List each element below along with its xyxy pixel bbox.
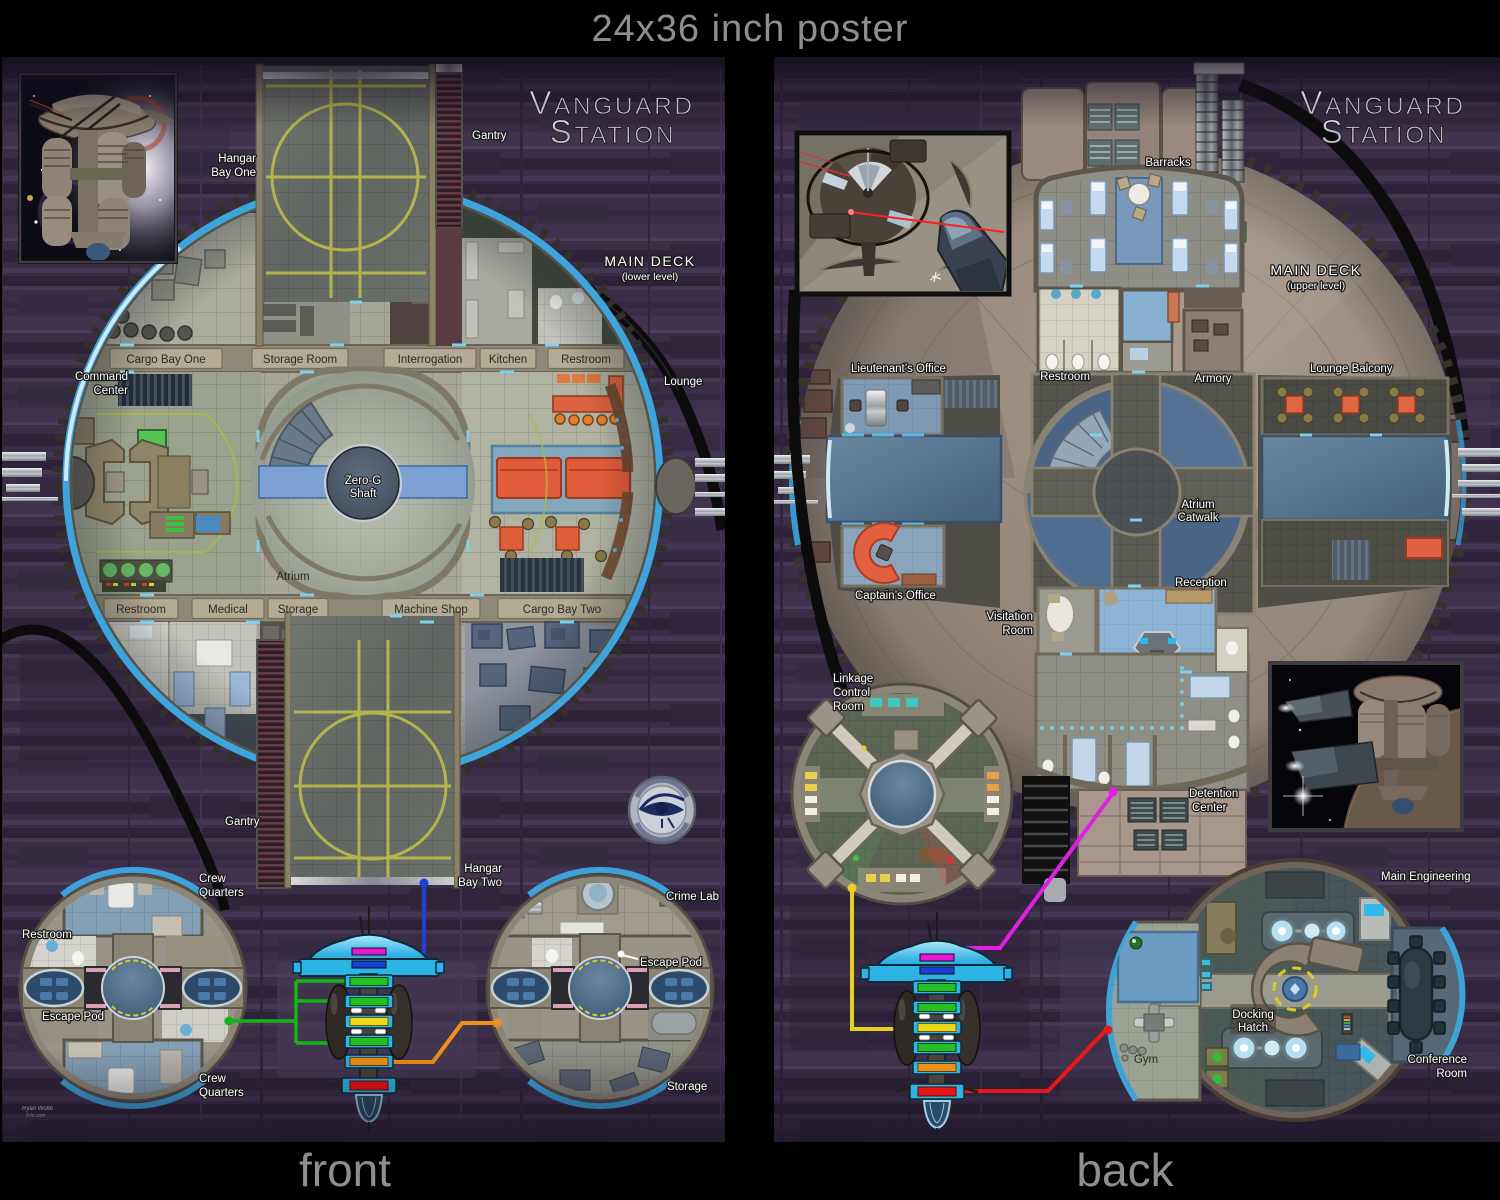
svg-text:Hatch: Hatch <box>1238 1022 1268 1034</box>
svg-text:Docking: Docking <box>1232 1009 1274 1021</box>
svg-text:Quarters: Quarters <box>199 1087 244 1099</box>
svg-text:Escape Pod: Escape Pod <box>42 1011 104 1023</box>
svg-text:Storage: Storage <box>667 1081 707 1093</box>
svg-text:Atrium: Atrium <box>276 571 309 583</box>
svg-text:(lower level): (lower level) <box>622 271 679 283</box>
svg-text:Crew: Crew <box>199 1073 227 1085</box>
svg-text:Gantry: Gantry <box>472 130 507 142</box>
svg-text:Crew: Crew <box>199 873 227 885</box>
svg-text:Interrogation: Interrogation <box>398 354 463 366</box>
svg-text:Lieutenant’s Office: Lieutenant’s Office <box>851 363 946 375</box>
svg-text:Center: Center <box>93 385 128 397</box>
svg-text:Linkage: Linkage <box>833 673 873 685</box>
svg-text:MAIN DECK: MAIN DECK <box>604 253 695 269</box>
svg-text:(upper level): (upper level) <box>1287 280 1345 292</box>
svg-text:Restroom: Restroom <box>22 929 72 941</box>
svg-text:Gym: Gym <box>1134 1054 1158 1066</box>
svg-text:0-hr.com: 0-hr.com <box>26 1113 46 1119</box>
svg-text:Escape Pod: Escape Pod <box>640 957 702 969</box>
svg-text:Kitchen: Kitchen <box>489 354 527 366</box>
svg-text:Zero-G: Zero-G <box>345 475 381 487</box>
svg-text:MAIN DECK: MAIN DECK <box>1270 262 1361 278</box>
svg-text:Restroom: Restroom <box>561 354 611 366</box>
svg-text:Bay One: Bay One <box>211 167 256 179</box>
svg-text:Conference: Conference <box>1408 1054 1467 1066</box>
svg-text:Center: Center <box>1192 802 1227 814</box>
svg-text:Hangar: Hangar <box>464 863 502 875</box>
svg-text:Command: Command <box>75 371 128 383</box>
svg-text:Reception: Reception <box>1175 577 1227 589</box>
svg-text:Shaft: Shaft <box>350 488 378 500</box>
svg-text:Barracks: Barracks <box>1145 157 1191 169</box>
svg-text:Lounge: Lounge <box>664 376 702 388</box>
svg-text:Bay Two: Bay Two <box>458 877 502 889</box>
svg-text:Main Engineering: Main Engineering <box>1381 871 1471 883</box>
svg-text:Gantry: Gantry <box>225 816 260 828</box>
svg-text:Room: Room <box>1002 625 1033 637</box>
svg-text:Detention: Detention <box>1189 788 1238 800</box>
svg-text:Atrium: Atrium <box>1181 499 1214 511</box>
svg-text:Armory: Armory <box>1194 373 1231 385</box>
svg-text:Cargo Bay Two: Cargo Bay Two <box>523 604 601 616</box>
svg-text:Restroom: Restroom <box>116 604 166 616</box>
svg-text:Restroom: Restroom <box>1040 371 1090 383</box>
svg-text:Storage Room: Storage Room <box>263 354 337 366</box>
svg-text:Room: Room <box>1436 1068 1467 1080</box>
svg-text:Hangar: Hangar <box>218 153 256 165</box>
svg-text:Lounge Balcony: Lounge Balcony <box>1310 363 1393 375</box>
svg-text:Quarters: Quarters <box>199 887 244 899</box>
svg-text:Crime Lab: Crime Lab <box>666 891 719 903</box>
svg-text:Room: Room <box>833 701 864 713</box>
svg-text:Ryan Wolfe: Ryan Wolfe <box>22 1106 54 1112</box>
svg-text:Machine Shop: Machine Shop <box>394 604 468 616</box>
svg-text:Captain’s Office: Captain’s Office <box>855 590 936 602</box>
svg-text:Cargo Bay One: Cargo Bay One <box>126 354 205 366</box>
svg-text:Control: Control <box>833 687 870 699</box>
svg-text:Visitation: Visitation <box>987 611 1033 623</box>
svg-text:Medical: Medical <box>208 604 248 616</box>
svg-text:Storage: Storage <box>278 604 318 616</box>
svg-text:Catwalk: Catwalk <box>1178 512 1219 524</box>
